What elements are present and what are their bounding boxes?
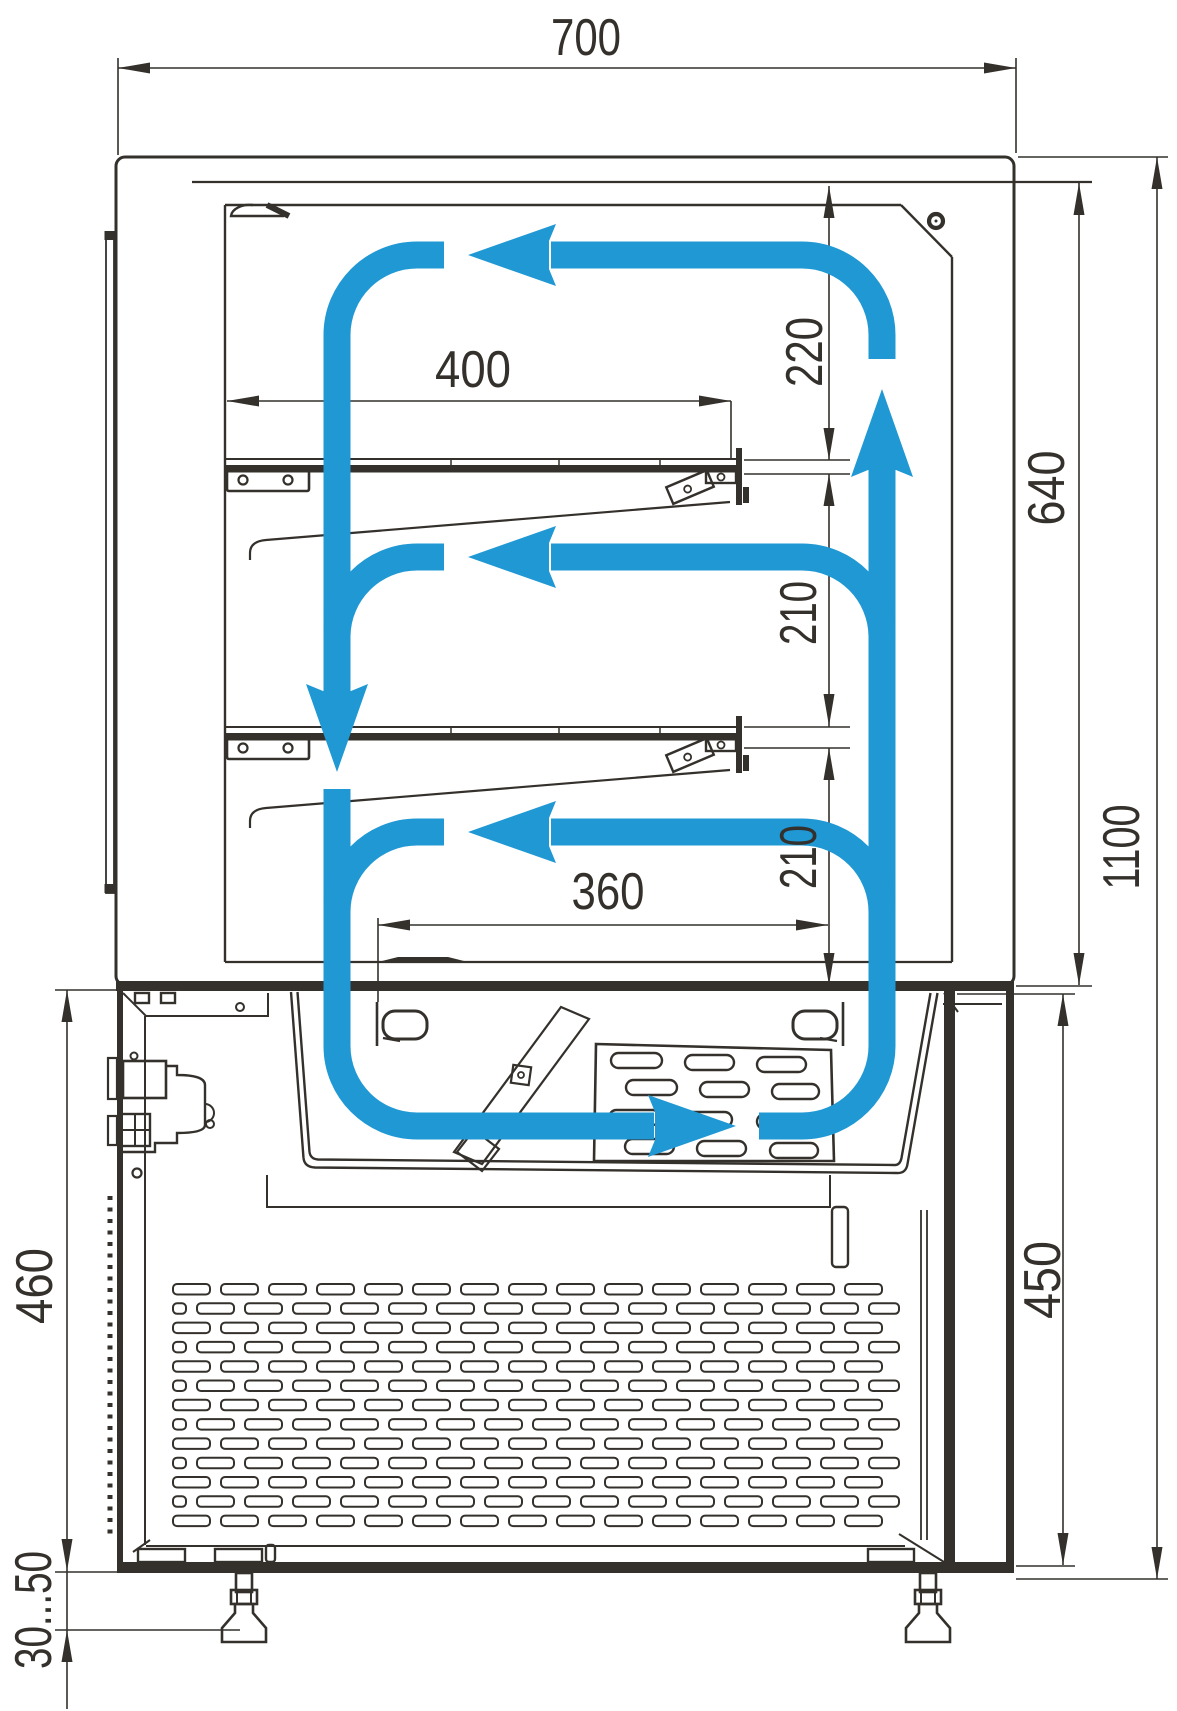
svg-text:30...50: 30...50 bbox=[5, 1551, 63, 1669]
svg-text:700: 700 bbox=[551, 9, 621, 67]
svg-text:450: 450 bbox=[1014, 1241, 1072, 1319]
svg-text:460: 460 bbox=[6, 1248, 64, 1324]
svg-text:220: 220 bbox=[776, 317, 834, 387]
svg-text:210: 210 bbox=[770, 825, 828, 889]
svg-text:640: 640 bbox=[1018, 451, 1076, 526]
svg-text:360: 360 bbox=[572, 863, 645, 921]
svg-text:1100: 1100 bbox=[1093, 805, 1151, 890]
svg-text:210: 210 bbox=[770, 581, 828, 645]
svg-text:400: 400 bbox=[435, 341, 511, 399]
